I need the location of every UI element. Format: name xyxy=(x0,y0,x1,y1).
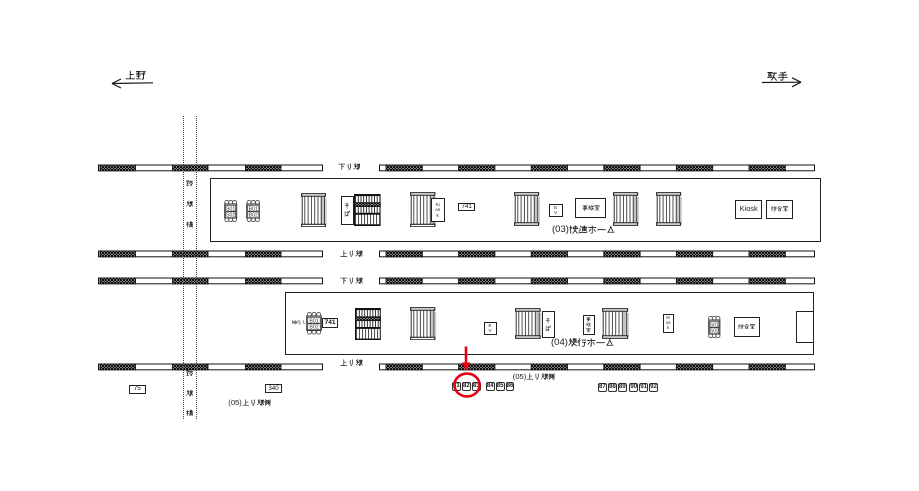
svg-text:S01: S01 xyxy=(710,322,719,328)
svg-text:S02: S02 xyxy=(710,328,719,334)
svg-text:B01: B01 xyxy=(248,206,257,212)
svg-text:S02: S02 xyxy=(226,213,235,219)
svg-text:B02: B02 xyxy=(309,325,318,331)
svg-text:B02: B02 xyxy=(248,213,257,219)
svg-text:B01: B01 xyxy=(309,318,318,324)
svg-text:S01: S01 xyxy=(226,206,235,212)
